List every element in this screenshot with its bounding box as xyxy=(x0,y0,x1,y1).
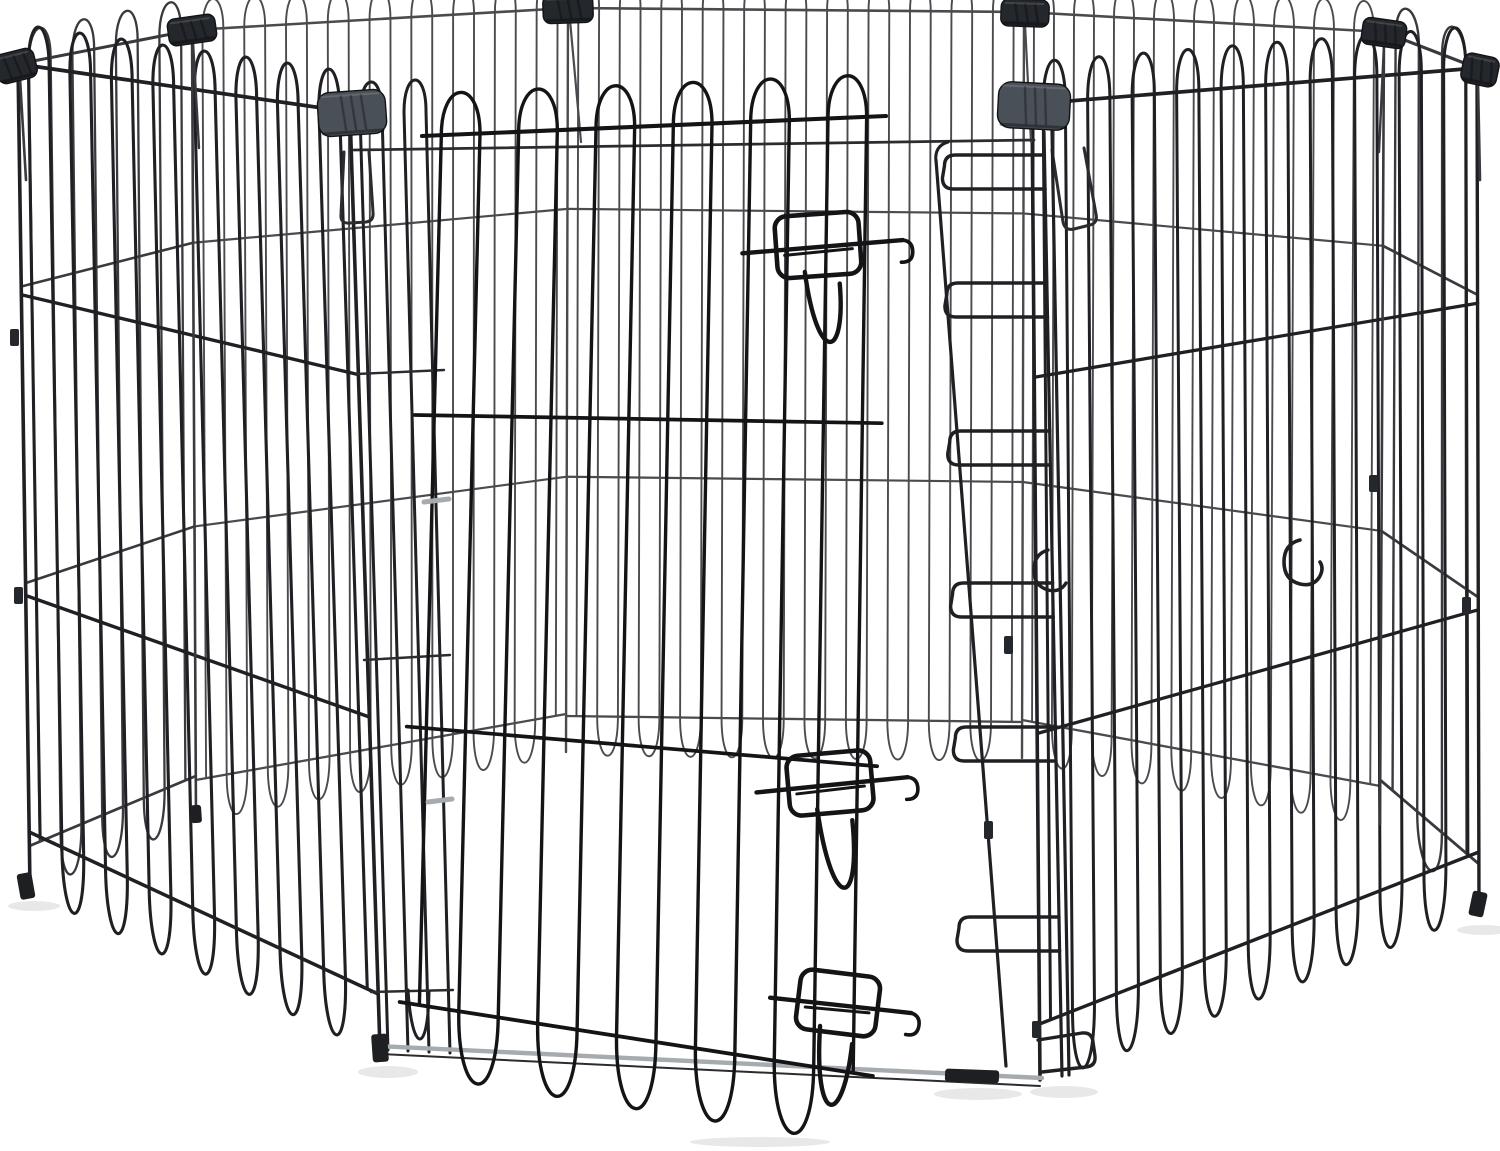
playpen-product-photo: Product photo: octagonal black foldable … xyxy=(0,0,1500,1151)
ground-foot-1 xyxy=(16,872,35,900)
corner-clip-left-edge xyxy=(0,47,39,86)
corner-clip-front-left xyxy=(317,89,388,138)
product-photo-canvas: Product photo: octagonal black foldable … xyxy=(0,0,1500,1151)
floor-shadows xyxy=(8,901,1500,1147)
ground-foot-5 xyxy=(1468,890,1488,918)
door-latch-bottom xyxy=(758,965,924,1114)
panel-front-right xyxy=(1032,28,1479,1068)
door-latch-top xyxy=(740,208,919,348)
corner-clip-back-left xyxy=(166,13,217,46)
corner-clip-back-right xyxy=(1360,17,1407,50)
corner-clip-back-center-left xyxy=(543,0,594,24)
corner-clip-front-right xyxy=(997,81,1071,131)
playpen-illustration: Product photo: octagonal black foldable … xyxy=(0,0,1500,1151)
ground-foot-2 xyxy=(190,805,202,824)
ground-foot-4 xyxy=(945,1069,999,1084)
corner-clip-back-center-right xyxy=(1001,0,1050,27)
panel-front-left xyxy=(18,27,378,1035)
ground-foot-3 xyxy=(371,1033,389,1062)
panel-door xyxy=(400,76,886,1134)
panel-side-left xyxy=(18,2,196,874)
panel-side-right xyxy=(1380,9,1479,871)
